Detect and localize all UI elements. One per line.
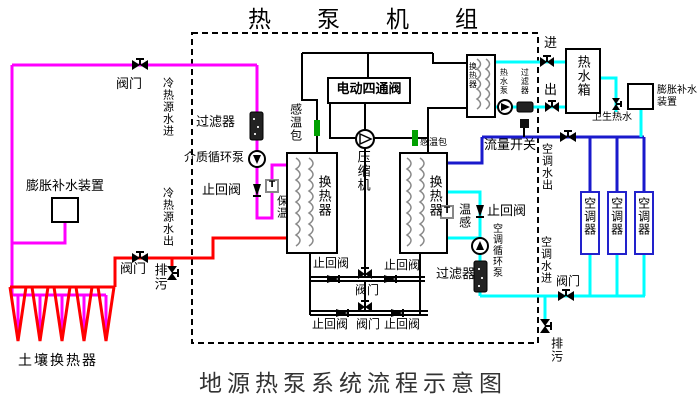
diagram-page: 热泵机组 地源热泵系统流程示意图 阀门 冷热源水进 冷热源水出 膨胀补水装置 过…	[0, 0, 700, 409]
valve-row2-label: 阀门	[356, 318, 380, 331]
valve-drain-right-icon	[540, 319, 551, 333]
ac-water-in-label: 空调水进	[540, 236, 552, 284]
expansion-right-label: 膨胀补水装置	[657, 85, 700, 108]
filter-source-icon	[250, 112, 263, 140]
expansion-tank-right-box	[628, 84, 653, 109]
valve-ac-return-icon	[558, 290, 574, 301]
temp-sensor-right-t: T	[444, 207, 450, 216]
diagram-title: 热泵机组	[248, 8, 524, 32]
valve-row1-label: 阀门	[355, 284, 379, 297]
hot-water-pump-label: 热水泵	[499, 68, 507, 95]
check-left-label: 止回阀	[202, 184, 241, 198]
check-row2-left-label: 止回阀	[312, 318, 348, 331]
ac-pump-icon	[472, 238, 488, 254]
valve-ground-label: 阀门	[120, 263, 146, 277]
valve-ac-supply-icon	[560, 131, 576, 142]
valve-drain-left-icon	[167, 266, 178, 280]
ac-unit-2-label: 空调器	[610, 197, 623, 236]
four-way-valve-label: 电动四通阀	[328, 83, 410, 97]
temp-bulb-left-icon	[314, 120, 320, 136]
hot-water-pump-icon	[498, 100, 512, 114]
source-in-label: 冷热源水进	[162, 77, 174, 137]
temp-bulb-left-label: 感温包	[289, 103, 302, 142]
medium-pump-label: 介质循环泵	[184, 151, 244, 164]
hot-water-filter-label: 过滤器	[520, 68, 528, 95]
filter-left-label: 过滤器	[196, 116, 235, 130]
valve-tank-in-icon	[540, 56, 554, 67]
sanitary-hot-water-label: 卫生热水	[592, 113, 632, 124]
soil-hx-label: 土壤换热器	[18, 354, 98, 369]
drain-left-label: 排污	[152, 263, 166, 291]
medium-pump-icon	[249, 151, 265, 167]
drain-right-label: 排污	[550, 337, 563, 363]
filter-ac-label: 过滤器	[436, 268, 475, 282]
hx-left-label: 换热器	[316, 175, 330, 217]
expansion-tank-left-box	[52, 198, 78, 222]
temp-sensor-left-t: T	[269, 181, 275, 190]
flow-switch-icon	[520, 119, 529, 128]
check-valve-icon	[253, 184, 261, 196]
expansion-left-label: 膨胀补水装置	[26, 180, 104, 194]
ac-pump-label: 空调循环泵	[490, 223, 501, 278]
compressor-icon	[356, 130, 374, 148]
check-ac-label: 止回阀	[487, 205, 526, 219]
temp-bulb-right-label: 感温包	[420, 139, 447, 148]
hot-water-tank-label: 热水箱	[575, 55, 589, 97]
source-out-label: 冷热源水出	[162, 187, 174, 247]
check-row1-right-label: 止回阀	[384, 259, 420, 272]
valve-source-in-label: 阀门	[116, 78, 142, 92]
valve-tank-out-icon	[545, 101, 559, 112]
filter-ac-icon	[474, 261, 487, 292]
check-row2-right-label: 止回阀	[384, 318, 420, 331]
filter-hotwater-icon	[517, 102, 533, 112]
valve-sanitary-icon	[612, 98, 621, 110]
ac-water-out-label: 空调水出	[541, 143, 553, 191]
valve-ac-return-label: 阀门	[556, 275, 580, 288]
ac-unit-1-label: 空调器	[583, 197, 596, 236]
temp-sensor-right-label: 温感	[458, 203, 471, 229]
compressor-label: 压缩机	[355, 150, 369, 192]
valve-source-in-icon	[132, 59, 148, 70]
insulation-label: 保温	[276, 195, 288, 219]
tank-in-label: 进	[544, 37, 557, 51]
ac-unit-3-label: 空调器	[637, 197, 650, 236]
diagram-caption: 地源热泵系统流程示意图	[199, 372, 507, 396]
check-row1-left-label: 止回阀	[313, 257, 349, 270]
temp-bulb-right-icon	[412, 130, 418, 146]
flow-switch-label: 流量开关	[484, 139, 536, 153]
hx-right-label: 换热器	[427, 175, 441, 217]
check-valve-icon	[476, 205, 484, 217]
hx-hotwater-label: 换热器	[468, 62, 476, 89]
tank-out-label: 出	[544, 84, 557, 98]
